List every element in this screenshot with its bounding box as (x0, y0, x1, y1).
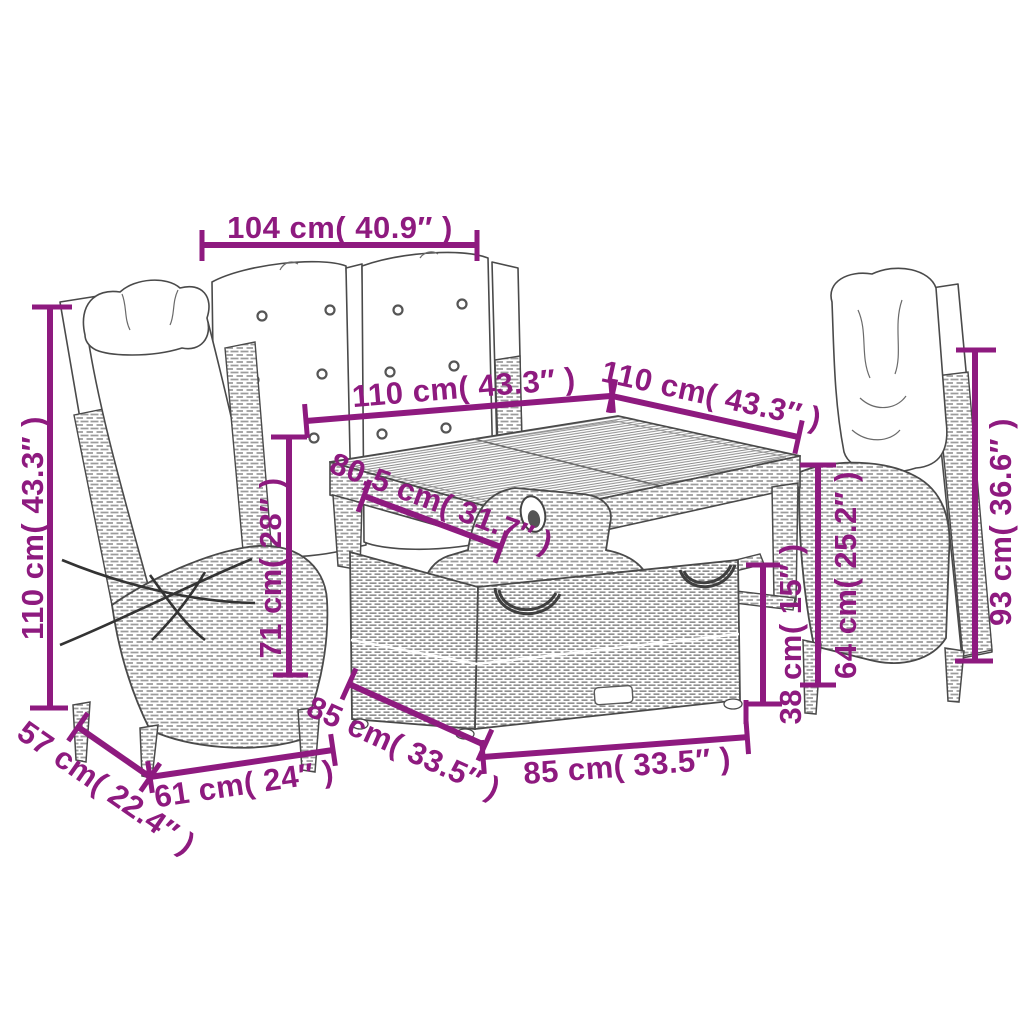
dim-label-bench-height: 38 cm( 15″ ) (773, 543, 808, 724)
dim-bench-height: 38 cm( 15″ ) (744, 543, 808, 724)
brand-label (594, 685, 633, 705)
dim-label-top-width: 104 cm( 40.9″ ) (227, 210, 453, 245)
dim-bench-front: 85 cm( 33.5″ ) (482, 720, 750, 794)
dim-label-bench-front: 85 cm( 33.5″ ) (522, 740, 732, 790)
tick (305, 404, 308, 438)
tick (482, 740, 485, 774)
dim-left-chair-height: 110 cm( 43.3″ ) (15, 307, 72, 708)
dim-label-armrest-height: 64 cm( 25.2″ ) (828, 471, 863, 679)
tick (746, 720, 749, 754)
dim-label-right-chair-height: 93 cm( 36.6″ ) (983, 418, 1018, 626)
dim-label-left-chair-height: 110 cm( 43.3″ ) (15, 416, 50, 640)
product-dimension-diagram: 104 cm( 40.9″ ) 110 cm( 43.3″ ) 110 cm( … (0, 0, 1024, 1024)
dim-label-table-height: 71 cm( 28″ ) (253, 477, 288, 658)
